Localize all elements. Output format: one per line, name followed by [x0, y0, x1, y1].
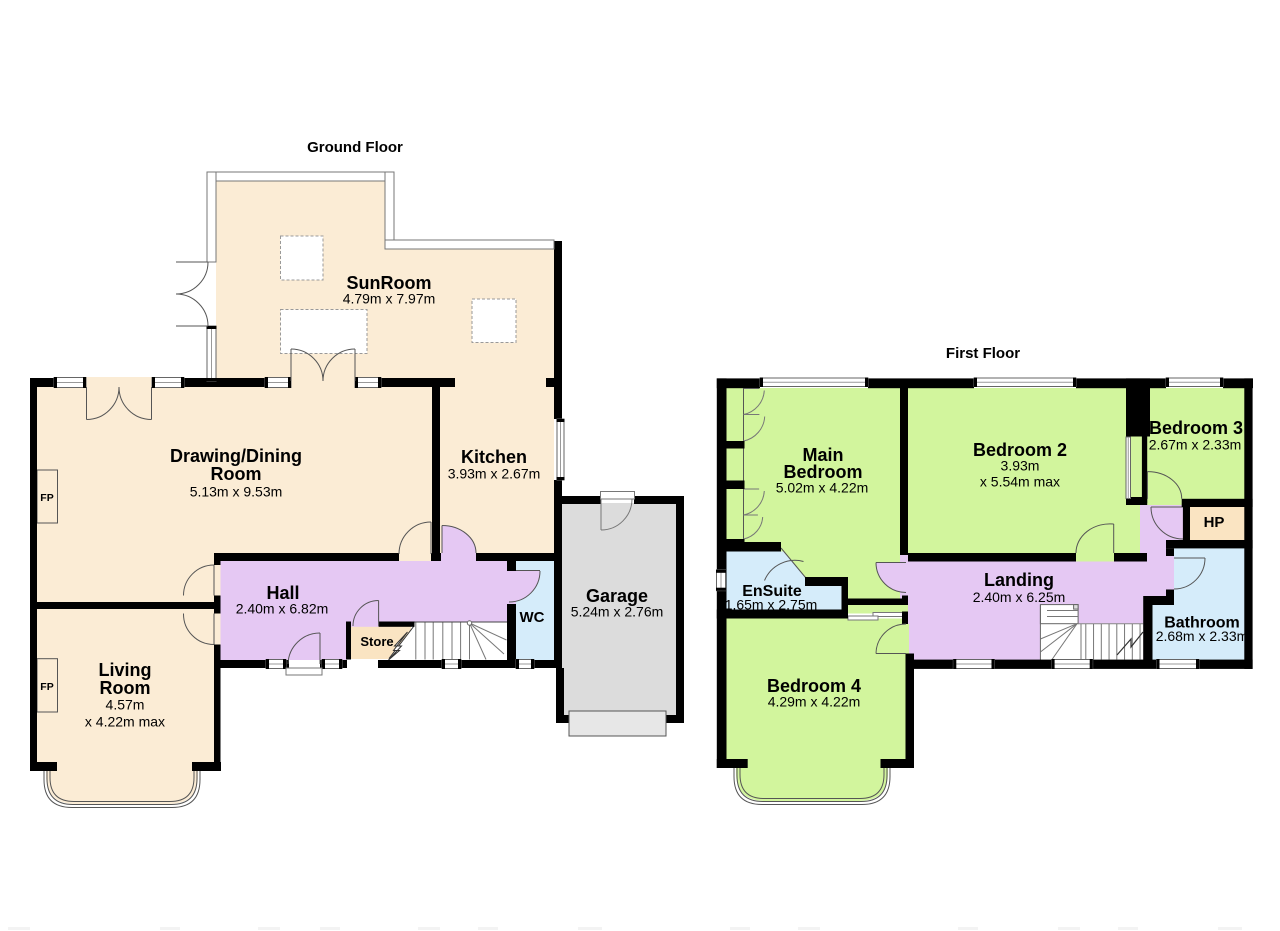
svg-text:Kitchen: Kitchen — [461, 447, 527, 467]
svg-text:Room: Room — [100, 678, 151, 698]
svg-text:5.02m x 4.22m: 5.02m x 4.22m — [776, 480, 869, 496]
svg-text:4.29m x 4.22m: 4.29m x 4.22m — [768, 694, 861, 710]
svg-text:Landing: Landing — [984, 570, 1054, 590]
svg-text:3.93m: 3.93m — [1001, 458, 1040, 474]
svg-text:5.24m x 2.76m: 5.24m x 2.76m — [571, 604, 664, 620]
svg-text:4.79m x 7.97m: 4.79m x 7.97m — [343, 291, 436, 307]
svg-text:3.93m x 2.67m: 3.93m x 2.67m — [448, 466, 541, 482]
svg-text:Drawing/Dining: Drawing/Dining — [170, 446, 302, 466]
svg-text:4.57m: 4.57m — [106, 697, 145, 713]
svg-text:5.13m x 9.53m: 5.13m x 9.53m — [190, 484, 283, 500]
svg-text:2.40m x 6.82m: 2.40m x 6.82m — [236, 601, 329, 617]
svg-text:2.40m x 6.25m: 2.40m x 6.25m — [973, 589, 1066, 605]
svg-text:Store: Store — [360, 634, 393, 649]
svg-text:FP: FP — [40, 492, 53, 504]
svg-text:1.65m x 2.75m: 1.65m x 2.75m — [725, 597, 818, 613]
svg-text:2.67m x 2.33m: 2.67m x 2.33m — [1149, 437, 1242, 453]
svg-text:Bedroom 3: Bedroom 3 — [1149, 418, 1243, 438]
svg-text:x 4.22m max: x 4.22m max — [85, 714, 165, 730]
svg-text:Ground Floor: Ground Floor — [307, 139, 403, 156]
svg-text:Room: Room — [211, 464, 262, 484]
svg-text:x 5.54m max: x 5.54m max — [980, 474, 1060, 490]
svg-text:Living: Living — [99, 660, 152, 680]
svg-text:FP: FP — [40, 681, 53, 693]
svg-text:HP: HP — [1204, 514, 1225, 531]
svg-text:WC: WC — [520, 609, 545, 626]
svg-text:First Floor: First Floor — [946, 345, 1020, 362]
svg-text:2.68m x 2.33m: 2.68m x 2.33m — [1156, 628, 1249, 644]
